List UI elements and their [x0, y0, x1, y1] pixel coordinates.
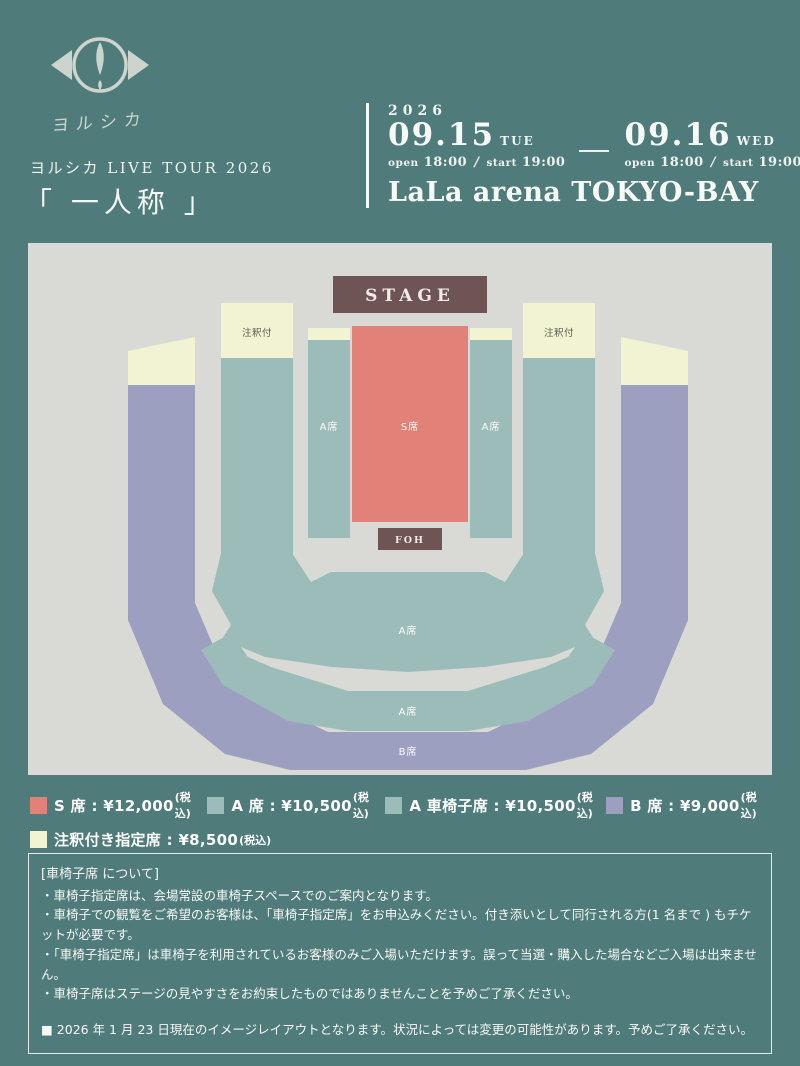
legend-tax: (税込) [239, 832, 271, 848]
legend-item-a-wheelchair: A 車椅子席 : ¥10,500 (税込) [385, 789, 593, 821]
a-seat-column-outer-right [523, 358, 595, 563]
legend-item-s: S 席 : ¥12,000 (税込) [30, 789, 194, 821]
a-wheelchair-swatch [385, 797, 402, 814]
seat-map-svg: STAGE FOH S席 A席 A席 注釈付 注釈付 A席 A席 B席 [28, 243, 772, 775]
legend-row-1: S 席 : ¥12,000 (税込) A 席 : ¥10,500 (税込) A … [30, 789, 774, 821]
eye-pupil-line [96, 42, 104, 75]
s-seat-label: S席 [401, 420, 419, 433]
legend-text: S 席 : ¥12,000 [54, 795, 174, 816]
note-line-2: ・車椅子での観覧をご希望のお客様は、「車椅子指定席」をお申込みください。付き添い… [41, 905, 759, 945]
date1-start-label: start [487, 157, 517, 169]
date1-start-time: 19:00 [522, 155, 565, 170]
legend-row-2: 注釈付き指定席 : ¥8,500 (税込) [30, 829, 774, 850]
date1-open-label: open [388, 157, 419, 169]
legend-text: A 車椅子席 : ¥10,500 [409, 795, 575, 816]
seat-map: STAGE FOH S席 A席 A席 注釈付 注釈付 A席 A席 B席 [28, 243, 772, 775]
a-seat-column-inner-left [308, 340, 350, 538]
date2-times: open 18:00 / start 19:00 [625, 155, 800, 170]
a-seat-column-inner-right [470, 340, 512, 538]
logo-script-text: ヨルシカ [51, 105, 149, 137]
dates-block: 2026 09.15 TUE open 18:00 / start 19:00 … [366, 103, 800, 208]
layout-footnote: ■ 2026 年 1 月 23 日現在のイメージレイアウトとなります。状況によっ… [41, 1020, 759, 1040]
date1-open-time: 18:00 [424, 155, 467, 170]
date2-separator: / [709, 155, 718, 170]
date2-start-time: 19:00 [759, 155, 800, 170]
annotated-seat-swatch [30, 831, 47, 848]
date-day2: 09.16 WED open 18:00 / start 19:00 [625, 120, 800, 170]
note-line-1: ・車椅子指定席は、会場常設の車椅子スペースでのご案内となります。 [41, 886, 759, 906]
a-seat-label-left: A席 [320, 420, 339, 433]
s-seat-swatch [30, 797, 47, 814]
legend-tax: (税込) [353, 789, 373, 821]
date1-separator: / [472, 155, 481, 170]
b-seat-label: B席 [399, 745, 418, 758]
legend-text: 注釈付き指定席 : ¥8,500 [54, 829, 238, 850]
b-seat-swatch [606, 797, 623, 814]
annotated-label-left: 注釈付 [242, 327, 272, 339]
date2-open-label: open [625, 157, 656, 169]
eye-logo-icon [50, 28, 150, 104]
tour-title: 「 一人称 」 [24, 181, 217, 221]
legend-item-annotated: 注釈付き指定席 : ¥8,500 (税込) [30, 829, 271, 850]
annotated-label-right: 注釈付 [544, 327, 574, 339]
eye-right-chevron [128, 50, 149, 80]
date2-number: 09.16 [625, 117, 732, 153]
eye-left-chevron [51, 50, 72, 80]
date-divider-line [579, 150, 608, 152]
date2-dow: WED [737, 134, 776, 148]
annotated-strip-left-a [308, 328, 350, 340]
tour-poster: ヨルシカ ヨルシカ LIVE TOUR 2026 「 一人称 」 2026 09… [0, 0, 800, 1066]
dates-row: 09.15 TUE open 18:00 / start 19:00 09.16… [388, 120, 800, 170]
legend-tax: (税込) [741, 789, 761, 821]
note-line-4: ・車椅子席はステージの見やすさをお約束したものではありませんことを予めご了承くだ… [41, 984, 759, 1004]
date-day1: 09.15 TUE open 18:00 / start 19:00 [388, 120, 565, 170]
legend-item-a: A 席 : ¥10,500 (税込) [207, 789, 372, 821]
legend-item-b: B 席 : ¥9,000 (税込) [606, 789, 761, 821]
date1-times: open 18:00 / start 19:00 [388, 155, 565, 170]
wheelchair-notes-box: [車椅子席 について] ・車椅子指定席は、会場常設の車椅子スペースでのご案内とな… [28, 853, 772, 1054]
tour-label: ヨルシカ LIVE TOUR 2026 [30, 157, 274, 178]
a-seat-label-right: A席 [482, 420, 501, 433]
date1-number: 09.15 [388, 117, 495, 153]
date1-dow: TUE [500, 134, 535, 148]
legend-tax: (税込) [577, 789, 593, 821]
legend-text: A 席 : ¥10,500 [231, 795, 352, 816]
a-seat-label-band: A席 [399, 705, 418, 718]
a-seat-label-bowl: A席 [399, 624, 418, 637]
yorushika-logo: ヨルシカ [40, 28, 160, 133]
eye-pupil-dot [98, 80, 102, 90]
stage-label: STAGE [365, 286, 455, 306]
foh-label: FOH [395, 535, 425, 546]
price-legend: S 席 : ¥12,000 (税込) A 席 : ¥10,500 (税込) A … [30, 789, 774, 858]
annotated-strip-right-a [470, 328, 512, 340]
a-seat-swatch [207, 797, 224, 814]
a-seat-column-outer-left [221, 358, 293, 563]
note-line-3: ・「車椅子指定席」は車椅子を利用されているお客様のみご入場いただけます。誤って当… [41, 945, 759, 985]
date2-open-time: 18:00 [660, 155, 703, 170]
notes-title: [車椅子席 について] [41, 865, 759, 886]
legend-text: B 席 : ¥9,000 [630, 795, 740, 816]
venue-name: LaLa arena TOKYO-BAY [388, 177, 800, 208]
date2-start-label: start [723, 157, 753, 169]
legend-tax: (税込) [175, 789, 195, 821]
